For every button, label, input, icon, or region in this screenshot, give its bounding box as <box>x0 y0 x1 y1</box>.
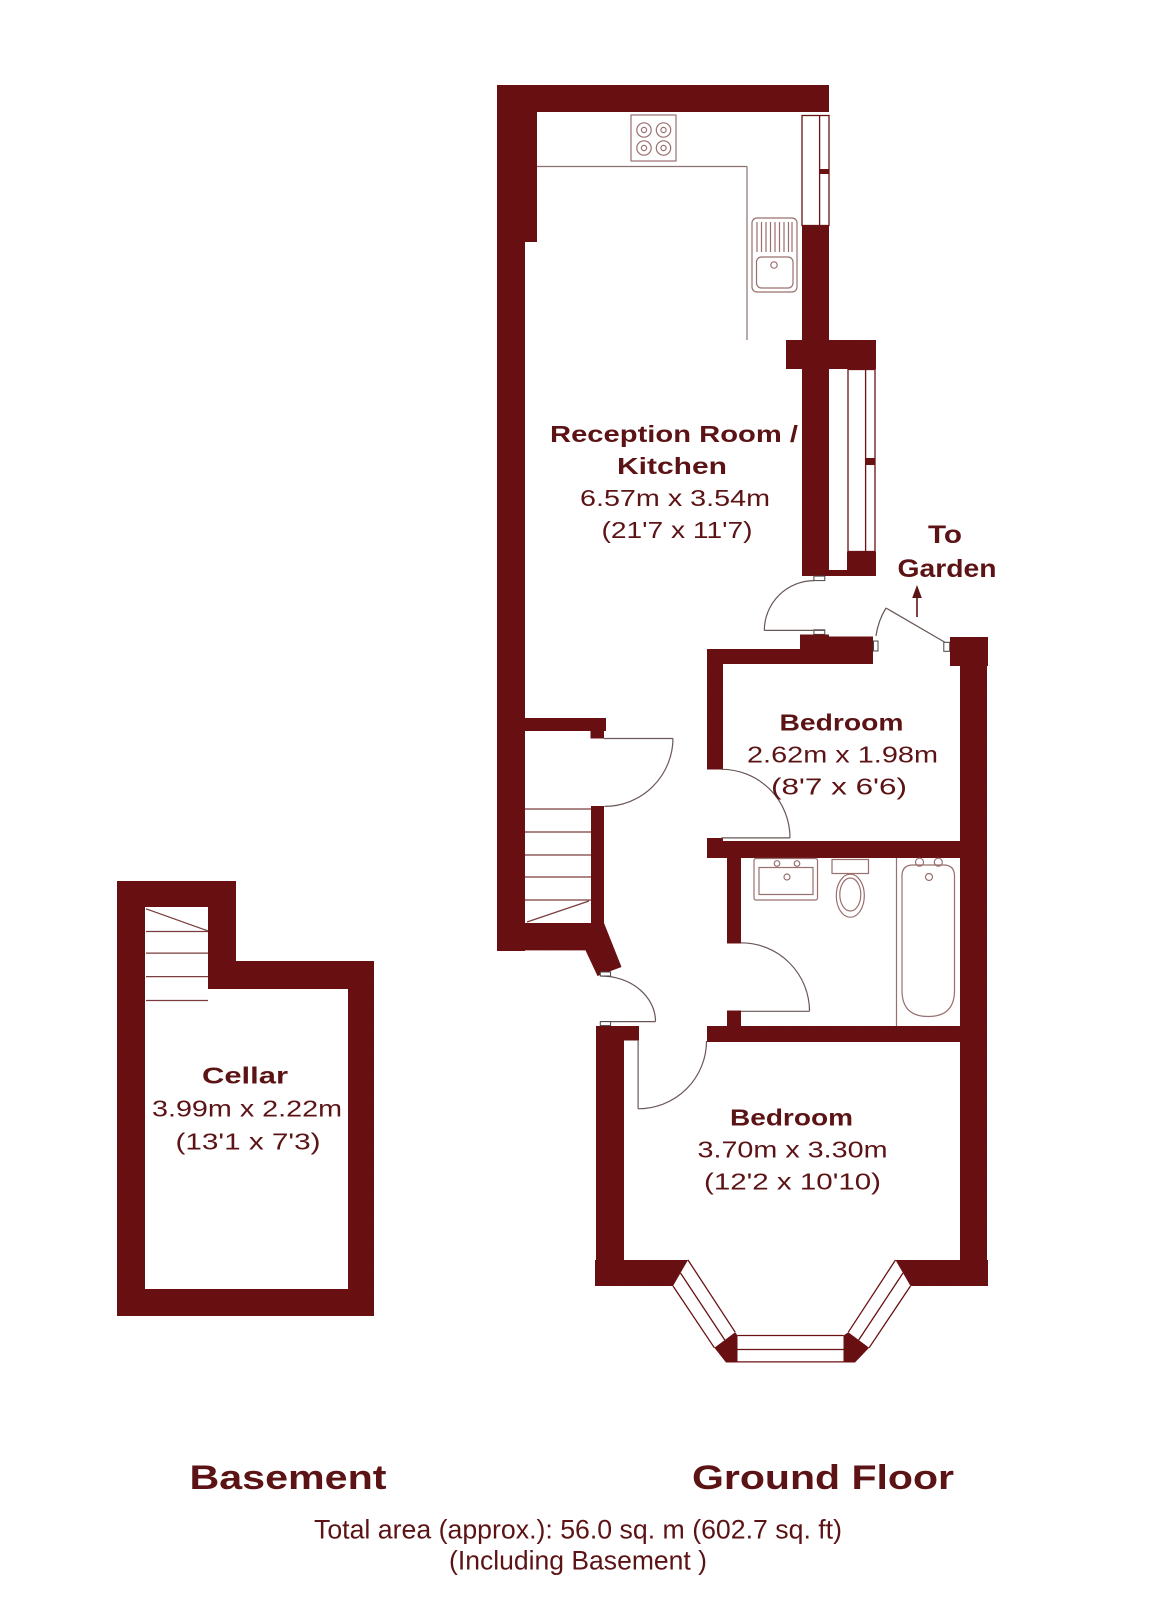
svg-text:(12'2 x 10'10): (12'2 x 10'10) <box>704 1168 881 1194</box>
svg-text:To: To <box>928 521 962 549</box>
svg-text:Reception Room /: Reception Room / <box>550 421 799 447</box>
svg-text:3.70m x 3.30m: 3.70m x 3.30m <box>698 1136 888 1162</box>
svg-text:2.62m x 1.98m: 2.62m x 1.98m <box>747 741 938 767</box>
svg-text:6.57m x 3.54m: 6.57m x 3.54m <box>580 485 770 511</box>
svg-text:(21'7 x 11'7): (21'7 x 11'7) <box>602 517 753 543</box>
svg-text:(13'1 x 7'3): (13'1 x 7'3) <box>176 1128 321 1154</box>
svg-text:Cellar: Cellar <box>202 1062 288 1088</box>
svg-text:Garden: Garden <box>898 555 997 583</box>
svg-text:Ground Floor: Ground Floor <box>692 1459 954 1497</box>
svg-text:3.99m x 2.22m: 3.99m x 2.22m <box>152 1095 342 1121</box>
svg-text:Total area (approx.): 56.0 sq.: Total area (approx.): 56.0 sq. m (602.7 … <box>314 1515 842 1545</box>
svg-text:(8'7 x 6'6): (8'7 x 6'6) <box>771 773 907 799</box>
svg-text:Bedroom: Bedroom <box>730 1104 853 1130</box>
svg-text:Basement: Basement <box>190 1459 387 1497</box>
svg-text:(Including Basement ): (Including Basement ) <box>449 1546 707 1576</box>
svg-text:Kitchen: Kitchen <box>617 453 727 479</box>
svg-text:Bedroom: Bedroom <box>780 709 904 735</box>
